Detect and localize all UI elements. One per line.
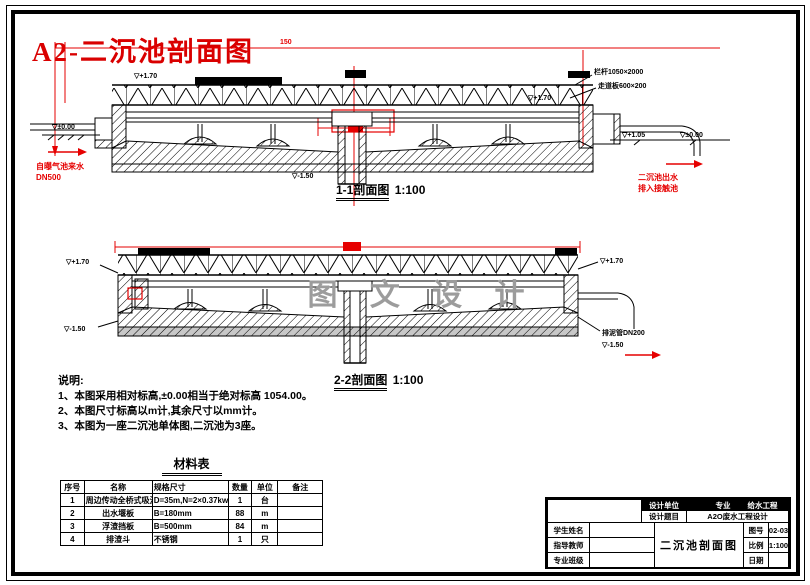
walkway-plate-2 bbox=[138, 248, 210, 255]
truss-bridge bbox=[112, 70, 593, 105]
scale-value: 1:100 bbox=[768, 537, 789, 553]
section-1-1-scale: 1:100 bbox=[395, 183, 426, 197]
scale-label: 比例 bbox=[743, 537, 769, 553]
cell: B=500mm bbox=[152, 520, 228, 533]
cell bbox=[278, 494, 323, 507]
cell: 排渣斗 bbox=[84, 533, 152, 546]
materials-table: 序号 名称 规格尺寸 数量 单位 备注 1 周边传动全桥式吸泥机 D=35m,N… bbox=[60, 480, 323, 546]
cell bbox=[278, 507, 323, 520]
right-end-plate-2 bbox=[555, 248, 577, 255]
advisor-label: 指导教师 bbox=[547, 537, 590, 553]
section-2-2-scale: 1:100 bbox=[393, 373, 424, 387]
cell: 2 bbox=[61, 507, 85, 520]
walkway-plate bbox=[195, 77, 282, 85]
section-1-1-drawing: 150 bbox=[30, 28, 750, 235]
sheet-no-label: 图号 bbox=[743, 522, 769, 538]
date-value bbox=[768, 552, 789, 568]
elev-right-bottom-label: ▽-1.50 bbox=[601, 342, 623, 349]
cell: m bbox=[252, 507, 278, 520]
center-drive-plate bbox=[345, 70, 366, 78]
materials-section: 材料表 序号 名称 规格尺寸 数量 单位 备注 1 周边传动全桥式吸泥机 D=3… bbox=[60, 455, 323, 546]
red-drive-block-2 bbox=[343, 242, 361, 251]
notes-block: 说明: 1、本图采用相对标高,±0.00相当于绝对标高 1054.00。 2、本… bbox=[58, 374, 358, 434]
cell: 1 bbox=[228, 533, 252, 546]
center-shaft bbox=[332, 112, 372, 184]
notes-title: 说明: bbox=[58, 374, 358, 389]
col-header: 名称 bbox=[84, 481, 152, 494]
titleblock-blank-cell bbox=[547, 499, 642, 523]
materials-title: 材料表 bbox=[162, 455, 222, 476]
cell: 88 bbox=[228, 507, 252, 520]
col-header: 单位 bbox=[252, 481, 278, 494]
drawing-sheet: A2-二沉池剖面图 150 bbox=[0, 0, 810, 585]
cell: 84 bbox=[228, 520, 252, 533]
title-block: 设计单位 专业 给水工程 设计题目 A2O废水工程设计 学生姓名 指导教师 专业… bbox=[545, 497, 791, 569]
outlet-pipes-2 bbox=[578, 262, 634, 331]
advisor-value bbox=[589, 537, 655, 553]
cell: 4 bbox=[61, 533, 85, 546]
student-name-label: 学生姓名 bbox=[547, 522, 590, 538]
elev-center-label: ▽-1.50 bbox=[291, 173, 313, 180]
col-header: 序号 bbox=[61, 481, 85, 494]
cell: D=35m,N=2×0.37kw bbox=[152, 494, 228, 507]
cell: 3 bbox=[61, 520, 85, 533]
right-end-plate bbox=[568, 71, 590, 78]
outlet-assembly bbox=[570, 75, 730, 156]
inlet-text-2: DN500 bbox=[36, 173, 61, 182]
table-row: 3 浮渣挡板 B=500mm 84 m bbox=[61, 520, 323, 533]
cell bbox=[278, 520, 323, 533]
table-row: 4 排渣斗 不锈钢 1 只 bbox=[61, 533, 323, 546]
red-arrowhead-left-dim bbox=[52, 146, 58, 156]
elev-right-top-label: ▽+1.70 bbox=[599, 258, 623, 265]
watermark-text: 图 文 设 计 bbox=[307, 278, 536, 312]
truss-bridge-2 bbox=[118, 248, 578, 275]
elev-ground-left-label: ▽±0.00 bbox=[51, 124, 75, 131]
note-item: 1、本图采用相对标高,±0.00相当于绝对标高 1054.00。 bbox=[58, 389, 358, 404]
elev-left-top-label: ▽+1.70 bbox=[65, 259, 89, 266]
cell: 1 bbox=[61, 494, 85, 507]
walkway-label: 走道板600×200 bbox=[598, 81, 647, 90]
inlet-assembly bbox=[30, 118, 112, 148]
cell: 不锈钢 bbox=[152, 533, 228, 546]
rail-label: 栏杆1050×2000 bbox=[594, 67, 643, 76]
cell: m bbox=[252, 520, 278, 533]
col-header: 规格尺寸 bbox=[152, 481, 228, 494]
elev-ground-right2-label: ▽±0.00 bbox=[679, 132, 703, 139]
outlet-text-2: 排入接触池 bbox=[638, 183, 678, 193]
elev-ground-right1-label: ▽+1.05 bbox=[621, 132, 645, 139]
cell: 1 bbox=[228, 494, 252, 507]
class-value bbox=[589, 552, 655, 568]
table-row: 2 出水堰板 B=180mm 88 m bbox=[61, 507, 323, 520]
elev-walkway-label: ▽+1.70 bbox=[133, 73, 157, 80]
dim-text-top: 150 bbox=[280, 39, 292, 46]
col-header: 数量 bbox=[228, 481, 252, 494]
note-item: 3、本图为一座二沉池单体图,二沉池为3座。 bbox=[58, 419, 358, 434]
cell: 出水堰板 bbox=[84, 507, 152, 520]
inlet-text-1: 自曝气池来水 bbox=[36, 161, 85, 171]
elev-water-right-label: ▽+1.70 bbox=[527, 95, 551, 102]
date-label: 日期 bbox=[743, 552, 769, 568]
table-row: 1 周边传动全桥式吸泥机 D=35m,N=2×0.37kw 1 台 bbox=[61, 494, 323, 507]
student-name-value bbox=[589, 522, 655, 538]
drawing-title: 二沉池剖面图 bbox=[654, 522, 744, 568]
section-1-1-caption: 1-1剖面图 1:100 bbox=[336, 181, 425, 198]
elev-left-bottom-label: ▽-1.50 bbox=[63, 326, 85, 333]
outlet-text-1: 二沉池出水 bbox=[638, 172, 679, 182]
col-header: 备注 bbox=[278, 481, 323, 494]
cell: 周边传动全桥式吸泥机 bbox=[84, 494, 152, 507]
cell: 浮渣挡板 bbox=[84, 520, 152, 533]
cell: B=180mm bbox=[152, 507, 228, 520]
cell: 只 bbox=[252, 533, 278, 546]
note-item: 2、本图尺寸标高以m计,其余尺寸以mm计。 bbox=[58, 404, 358, 419]
section-2-2-drawing: 图 文 设 计 ▽+1.70 ▽-1.50 ▽+1.70 排泥管DN200 ▽-… bbox=[40, 233, 740, 381]
materials-header-row: 序号 名称 规格尺寸 数量 单位 备注 bbox=[61, 481, 323, 494]
sheet-no-value: 02-03 bbox=[768, 522, 789, 538]
class-label: 专业班级 bbox=[547, 552, 590, 568]
mud-flow-arrow bbox=[625, 351, 661, 359]
cell: 台 bbox=[252, 494, 278, 507]
outlet-flow-arrow bbox=[666, 160, 703, 168]
mud-pipe-label: 排泥管DN200 bbox=[602, 328, 645, 337]
cell bbox=[278, 533, 323, 546]
section-1-1-name: 1-1剖面图 bbox=[336, 183, 389, 201]
